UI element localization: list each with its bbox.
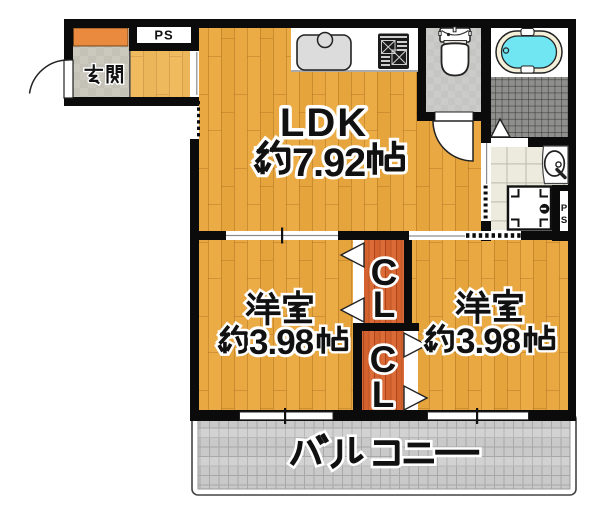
svg-text:LDK: LDK xyxy=(280,101,368,145)
svg-text:S: S xyxy=(561,215,567,226)
svg-text:7.92: 7.92 xyxy=(292,141,365,185)
svg-text:L: L xyxy=(373,284,396,325)
svg-text:PS: PS xyxy=(154,28,173,43)
svg-text:P: P xyxy=(561,203,568,214)
svg-text:3.98: 3.98 xyxy=(249,323,314,362)
svg-text:3.98: 3.98 xyxy=(456,322,521,361)
svg-text:L: L xyxy=(372,374,395,415)
